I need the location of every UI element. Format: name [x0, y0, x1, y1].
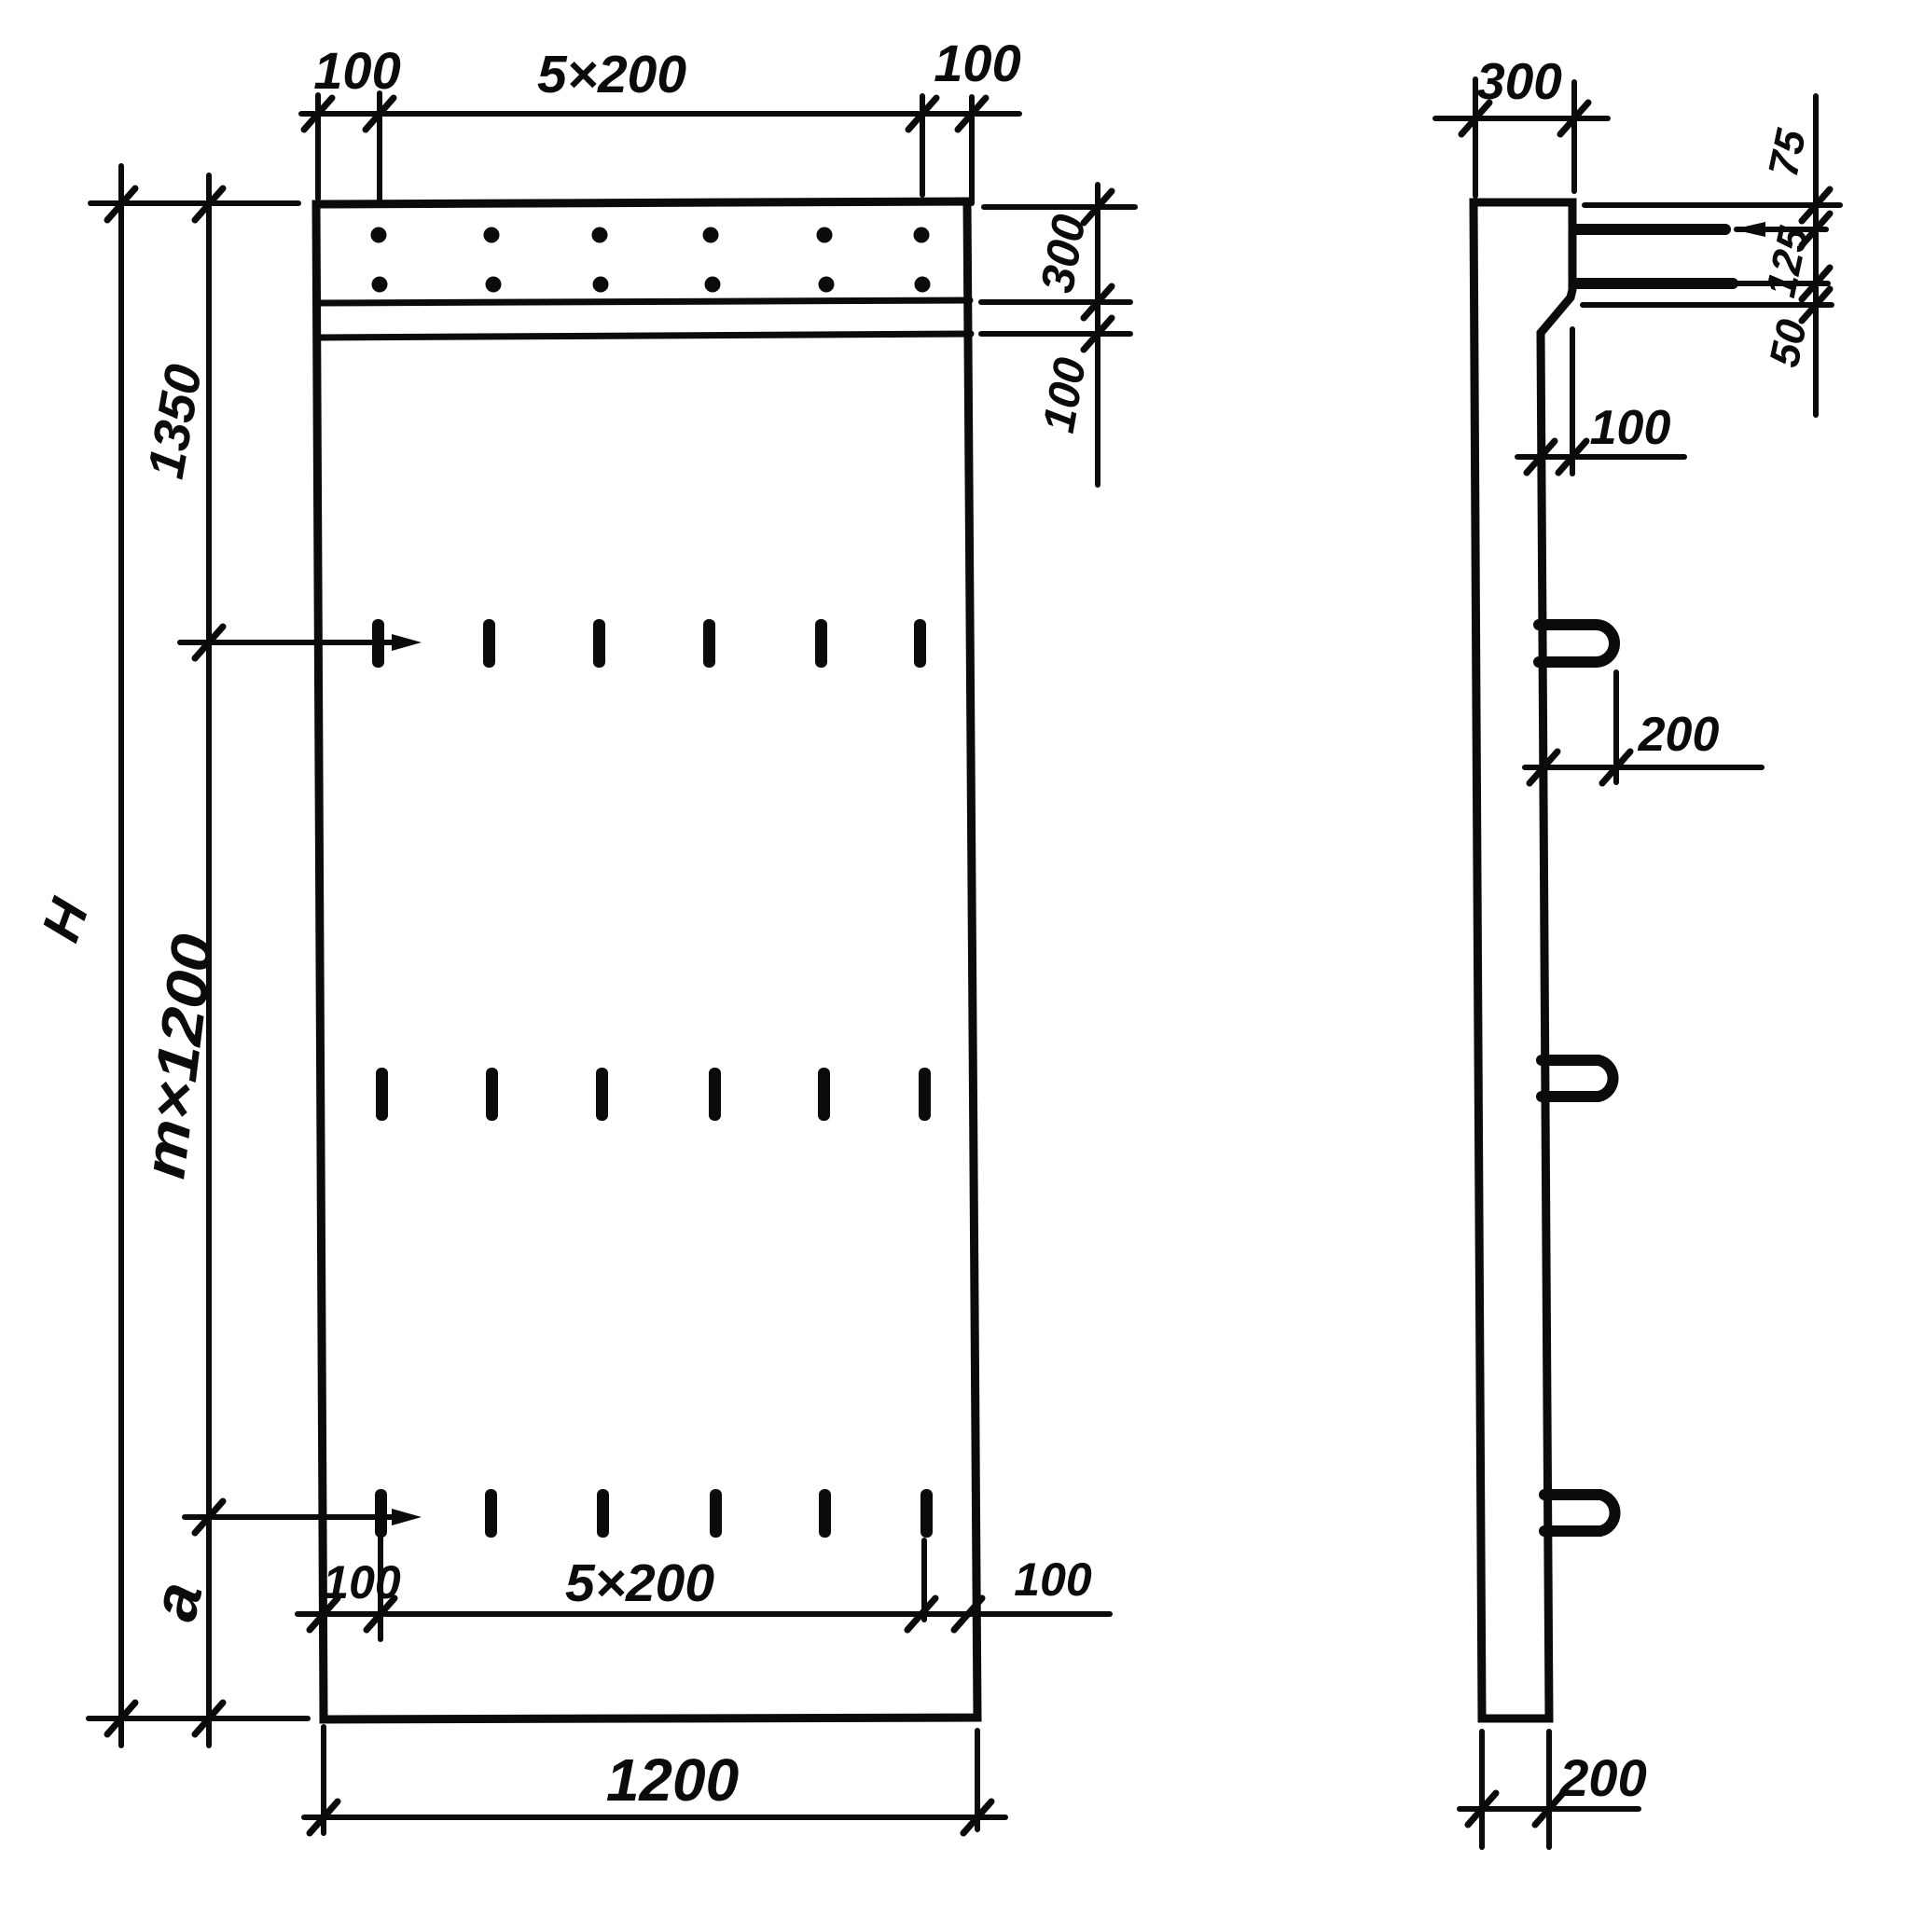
svg-text:1200: 1200 [606, 1746, 739, 1814]
svg-text:50: 50 [1760, 315, 1816, 371]
svg-text:100: 100 [1590, 401, 1671, 455]
svg-text:100: 100 [323, 1556, 401, 1608]
svg-text:100: 100 [1014, 1553, 1092, 1606]
svg-text:100: 100 [934, 34, 1020, 92]
svg-text:5×200: 5×200 [537, 45, 686, 104]
svg-text:200: 200 [1638, 708, 1720, 762]
svg-text:100: 100 [313, 41, 400, 100]
svg-text:300: 300 [1476, 52, 1562, 110]
svg-text:200: 200 [1558, 1748, 1646, 1807]
svg-text:5×200: 5×200 [565, 1553, 714, 1613]
